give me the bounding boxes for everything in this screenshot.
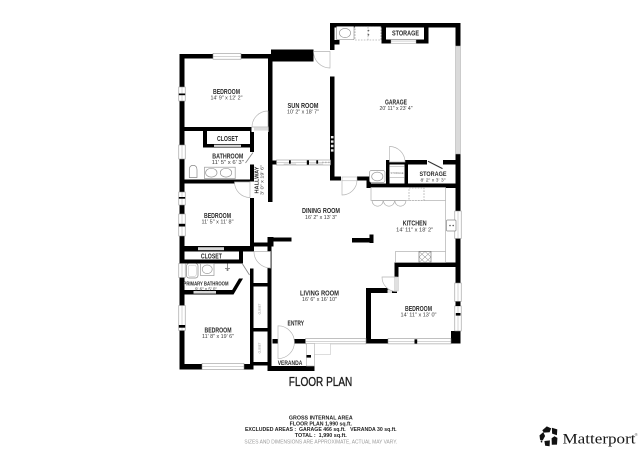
svg-text:16' 2" x 13' 3": 16' 2" x 13' 3" [305,215,337,221]
svg-text:FLOOR PLAN: FLOOR PLAN [289,374,353,389]
svg-text:®: ® [635,432,639,437]
svg-text:ENTRY: ENTRY [288,319,305,327]
svg-text:14' 9" x 12' 2": 14' 9" x 12' 2" [211,96,243,102]
svg-text:9' 6" x 5' 0": 9' 6" x 5' 0" [195,286,217,291]
svg-text:CLOSET: CLOSET [257,303,261,314]
svg-text:11' 5" x 6' 3": 11' 5" x 6' 3" [212,160,244,166]
svg-text:TOTAL : 1,990 sq.ft.: TOTAL : 1,990 sq.ft. [295,433,347,439]
svg-text:11' 8" x 19' 6": 11' 8" x 19' 6" [202,334,234,340]
svg-text:16' 6" x 16' 10": 16' 6" x 16' 10" [302,297,337,303]
svg-text:10' 2" x 18' 7": 10' 2" x 18' 7" [287,109,319,115]
svg-text:11' 5" x 11' 8": 11' 5" x 11' 8" [202,220,234,226]
svg-text:SIZES AND DIMENSIONS ARE APPRO: SIZES AND DIMENSIONS ARE APPROXIMATE, AC… [244,439,397,445]
svg-text:KITCHEN: KITCHEN [403,220,427,228]
svg-text:14' 11" x 13' 0": 14' 11" x 13' 0" [401,313,437,319]
svg-text:CLOSET: CLOSET [217,135,238,143]
svg-text:VERANDA: VERANDA [278,360,303,367]
svg-text:CLOSET: CLOSET [201,252,222,260]
svg-text:CLOSET: CLOSET [257,342,261,353]
svg-text:STORAGE: STORAGE [392,30,419,38]
svg-text:20' 11" x 23' 4": 20' 11" x 23' 4" [380,106,413,112]
svg-text:8' 2" x 3' 3": 8' 2" x 3' 3" [421,178,446,183]
svg-text:3' 0" x 19' 6": 3' 0" x 19' 6" [260,165,265,195]
svg-text:STORAGE: STORAGE [390,171,403,175]
svg-text:14' 11" x 18' 2": 14' 11" x 18' 2" [396,228,433,234]
svg-text:Matterport: Matterport [563,431,637,448]
